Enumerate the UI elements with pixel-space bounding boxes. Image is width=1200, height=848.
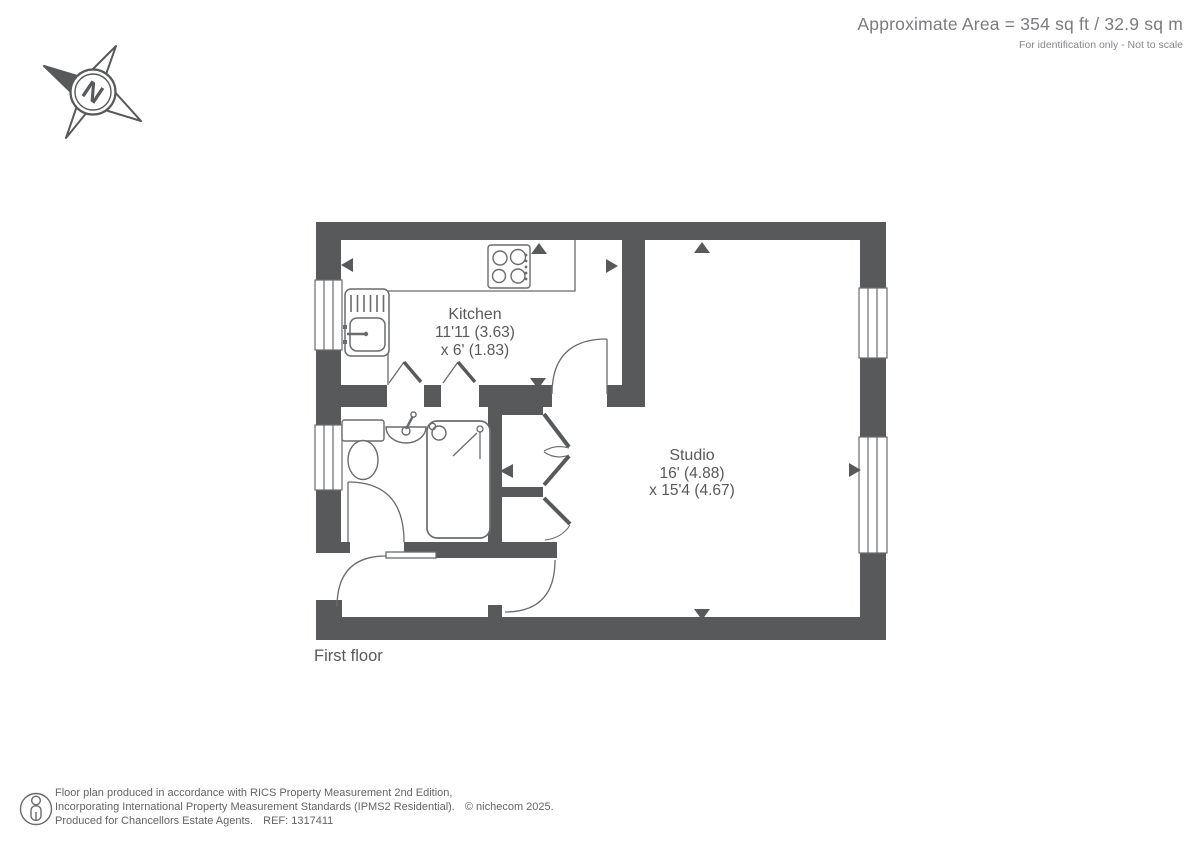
wall-top (316, 222, 886, 240)
entrance-door-left (337, 552, 436, 607)
footer-line-2: Incorporating International Property Mea… (55, 800, 554, 814)
toilet-cistern (342, 420, 384, 441)
entrance-door-right (505, 560, 555, 612)
basin (386, 412, 426, 443)
wall-kitchen-a (316, 385, 387, 407)
closet-bifold-doors (544, 414, 569, 485)
toilet-bowl (348, 441, 378, 480)
studio-arrow-up (694, 242, 710, 253)
bathroom-door (348, 482, 404, 542)
wall-closet-top (502, 405, 543, 415)
window-kitchen-left (315, 280, 342, 350)
toilet (342, 420, 384, 480)
kitchen-door (552, 339, 607, 394)
person-icon (21, 794, 52, 825)
footer-line-3: Produced for Chancellors Estate Agents.R… (55, 814, 554, 828)
windows (315, 280, 887, 553)
footer-line-1: Floor plan produced in accordance with R… (55, 786, 554, 800)
kitchen-hatch-doors (389, 362, 475, 383)
kitchen-dims-2: x 6' (1.83) (441, 342, 509, 359)
bathroom-fixtures (342, 412, 490, 538)
footer-area: Floor plan produced in accordance with R… (55, 786, 554, 828)
floorplan-page: Approximate Area = 354 sq ft / 32.9 sq m… (0, 0, 1200, 848)
wall-bath-door-jamb (334, 542, 350, 553)
wall-closet-mid (502, 487, 543, 497)
wall-right (860, 222, 886, 640)
wall-kitchen-c (479, 385, 552, 407)
wall-hall-stub (488, 605, 502, 617)
window-bathroom-left (315, 425, 342, 490)
floor-plan-svg: N (0, 0, 1200, 848)
copyright-text: © nichecom 2025. (465, 800, 554, 814)
closet-door-lower (544, 498, 570, 540)
kitchen-arrow-left (341, 258, 353, 272)
floor-label: First floor (314, 647, 383, 665)
reference-number: REF: 1317411 (263, 814, 333, 828)
studio-dims-1: 16' (4.88) (660, 465, 725, 482)
kitchen-dims-1: 11'11 (3.63) (435, 324, 515, 341)
bath-shower (427, 421, 490, 538)
wall-kitchen-b (424, 385, 441, 407)
studio-dims-2: x 15'4 (4.67) (649, 482, 735, 499)
wall-divider-foot (607, 385, 645, 407)
wall-divider (622, 240, 645, 385)
kitchen-arrow-up (531, 243, 547, 254)
wall-bottom (316, 617, 886, 640)
studio-label: Studio (669, 447, 714, 464)
hob (488, 245, 530, 288)
compass-rose: N (44, 46, 141, 138)
wall-left-stub (316, 600, 342, 617)
window-studio-right-top (859, 288, 887, 358)
sink-unit (343, 289, 389, 356)
kitchen-arrow-right (606, 259, 618, 273)
window-studio-right-bottom (859, 437, 887, 553)
kitchen-label: Kitchen (448, 306, 501, 323)
